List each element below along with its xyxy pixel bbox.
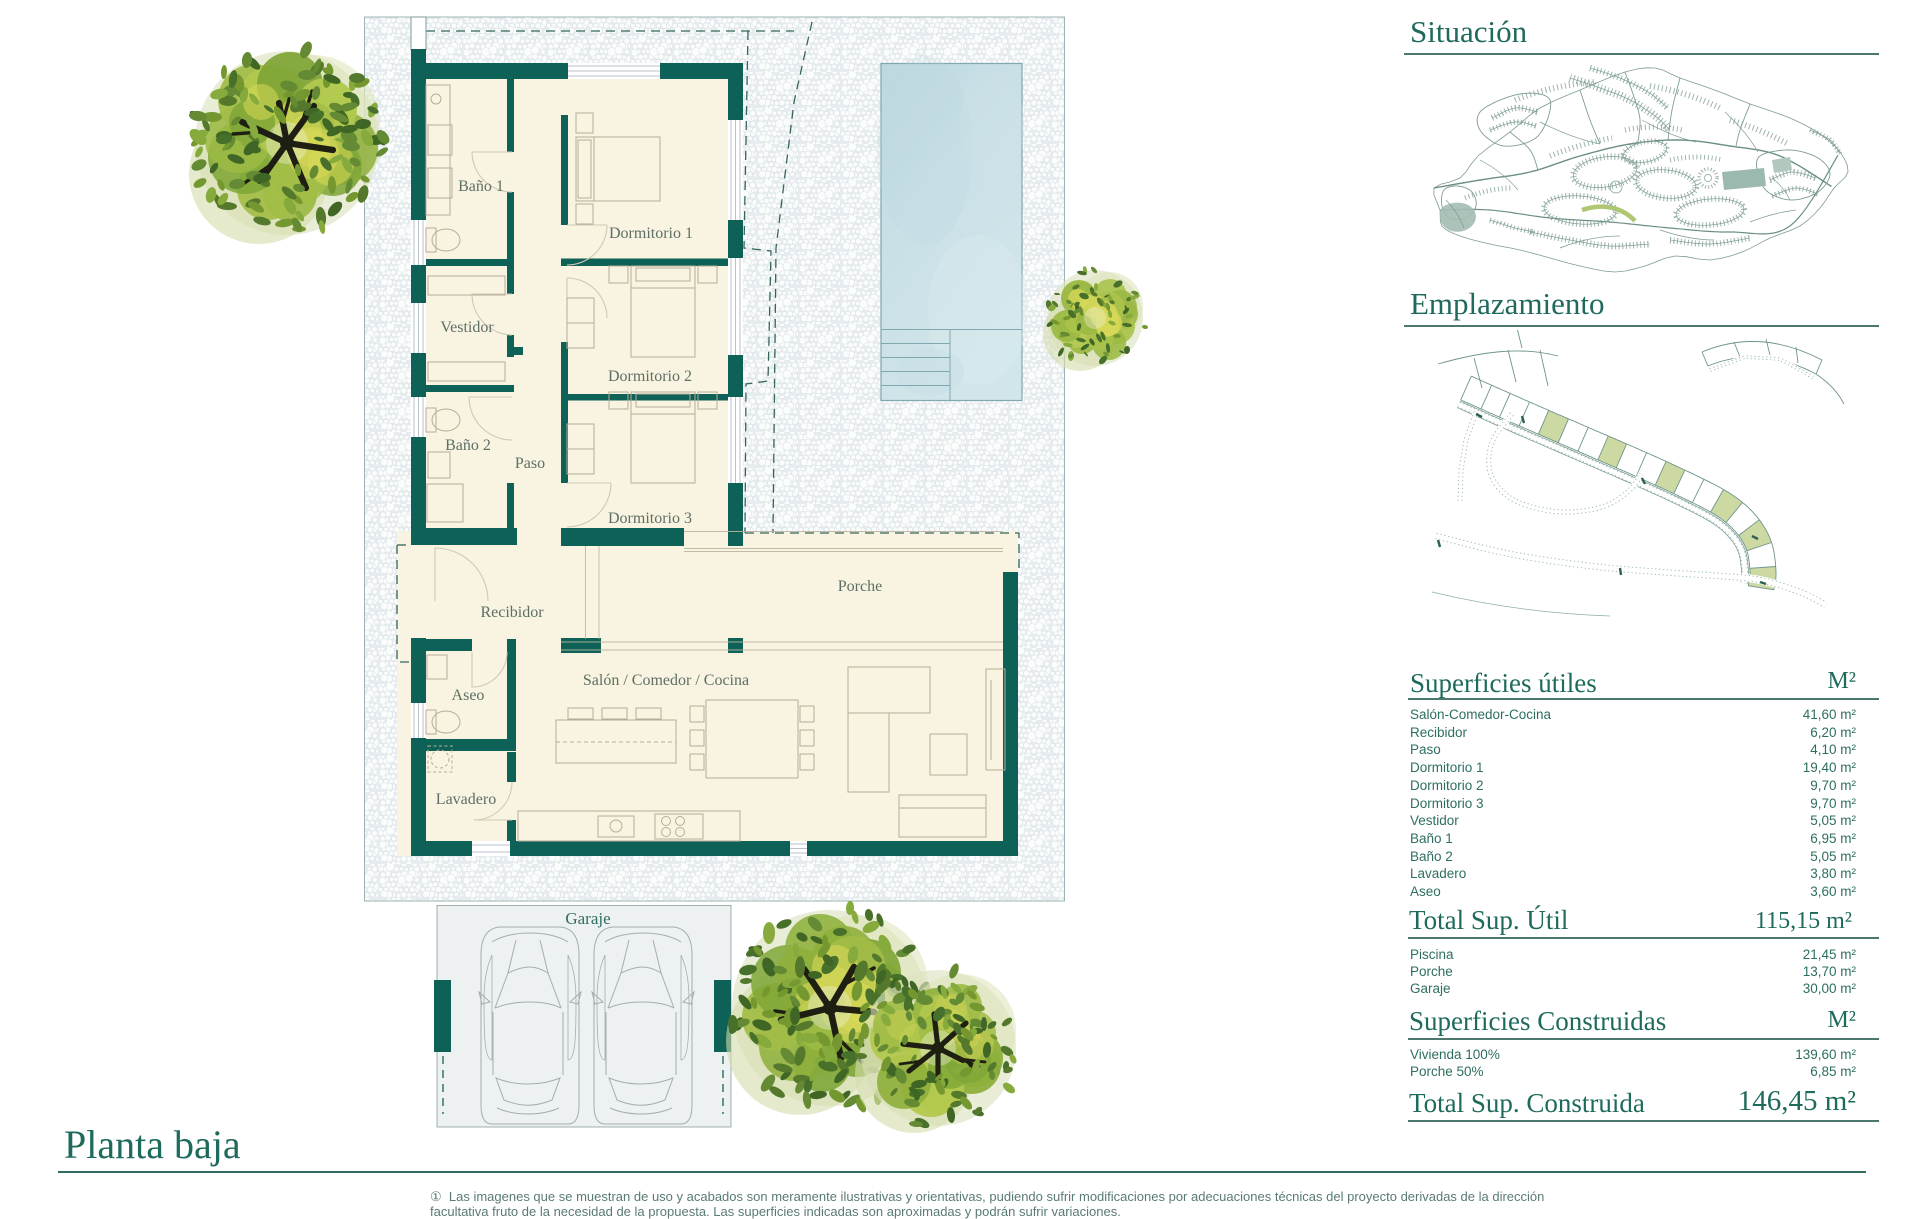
svg-text:Garaje: Garaje bbox=[565, 909, 610, 928]
svg-text:Baño 2: Baño 2 bbox=[445, 437, 491, 454]
svg-text:Lavadero: Lavadero bbox=[436, 791, 496, 808]
svg-text:Dormitorio 2: Dormitorio 2 bbox=[608, 368, 692, 385]
svg-text:Aseo: Aseo bbox=[452, 687, 485, 704]
svg-text:Salón / Comedor / Cocina: Salón / Comedor / Cocina bbox=[583, 672, 749, 689]
svg-text:Dormitorio 1: Dormitorio 1 bbox=[609, 225, 693, 242]
svg-text:Recibidor: Recibidor bbox=[480, 604, 544, 621]
svg-text:Vestidor: Vestidor bbox=[440, 319, 494, 336]
svg-text:Porche: Porche bbox=[838, 578, 882, 595]
svg-text:Dormitorio 3: Dormitorio 3 bbox=[608, 510, 692, 527]
svg-text:Baño 1: Baño 1 bbox=[458, 178, 504, 195]
svg-text:Paso: Paso bbox=[515, 455, 545, 472]
